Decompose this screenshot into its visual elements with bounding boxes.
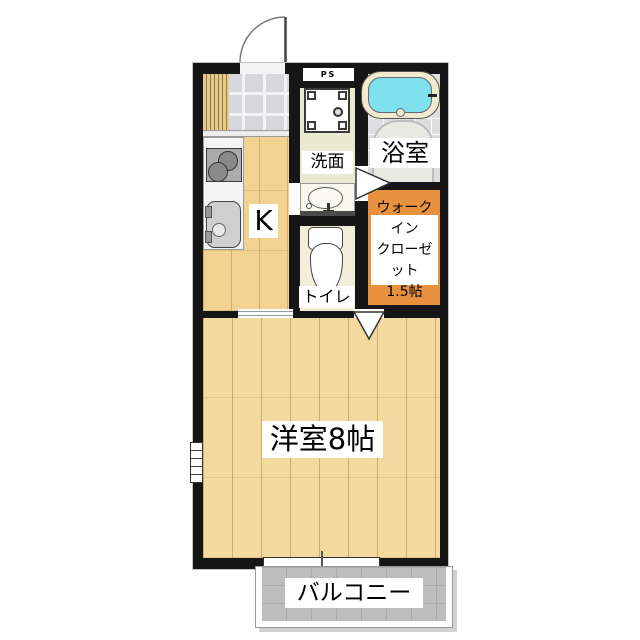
pan-corner — [338, 121, 347, 130]
washroom-text: 洗面 — [311, 154, 345, 171]
kitchen-sink-icon — [206, 201, 241, 248]
closet-door-opening — [354, 309, 384, 318]
pan-drain-icon — [333, 107, 343, 117]
burner-icon — [208, 162, 228, 182]
washing-machine-pan-icon — [304, 88, 350, 133]
entrance-step-edge — [203, 130, 289, 137]
kitchen-label: K — [249, 204, 278, 238]
entrance-door-arc-icon — [240, 17, 285, 62]
main-room-text: 洋室8帖 — [270, 425, 375, 454]
stove-icon — [206, 148, 242, 182]
pan-corner — [338, 91, 347, 100]
floor-plan-image: PS K — [0, 0, 640, 640]
pan-corner — [307, 91, 316, 100]
pipe-space-text: PS — [321, 71, 337, 79]
bathroom-text: 浴室 — [381, 141, 429, 165]
washroom-door-opening — [289, 183, 300, 215]
walk-in-closet-label: ウォークイン クローゼット 1.5帖 — [371, 215, 438, 285]
closet-text-line3: 1.5帖 — [386, 282, 422, 303]
closet-text-line1: ウォークイン — [371, 198, 438, 240]
toilet-label: トイレ — [299, 286, 354, 308]
balcony-label: バルコニー — [285, 578, 423, 608]
kitchen-text: K — [254, 207, 272, 235]
pan-corner — [307, 121, 316, 130]
sink-tab — [205, 231, 212, 243]
sink-tab — [205, 206, 212, 218]
vanity-counter-icon — [300, 183, 355, 213]
shoe-cabinet — [203, 74, 229, 131]
vanity-knob-icon — [306, 203, 312, 209]
sink-drain-icon — [212, 223, 226, 237]
entrance-door-opening — [240, 63, 285, 74]
kitchen-room-sliding-door-opening — [238, 309, 293, 318]
main-room-label: 洋室8帖 — [262, 421, 383, 458]
pipe-space-label: PS — [303, 68, 354, 81]
balcony-text: バルコニー — [297, 582, 412, 605]
bathtub-faucet-icon — [428, 94, 437, 97]
left-wall-window — [190, 442, 203, 483]
vanity-basin-icon — [308, 187, 343, 209]
bathtub-drain-icon — [396, 108, 405, 117]
bathroom-label: 浴室 — [370, 138, 440, 168]
bathtub-icon — [361, 71, 440, 119]
vanity-front-edge — [300, 211, 355, 216]
washroom-label: 洗面 — [302, 151, 353, 174]
bathroom-door-opening — [355, 166, 368, 201]
closet-text-line2: クローゼット — [371, 240, 438, 282]
toilet-text: トイレ — [302, 289, 350, 305]
